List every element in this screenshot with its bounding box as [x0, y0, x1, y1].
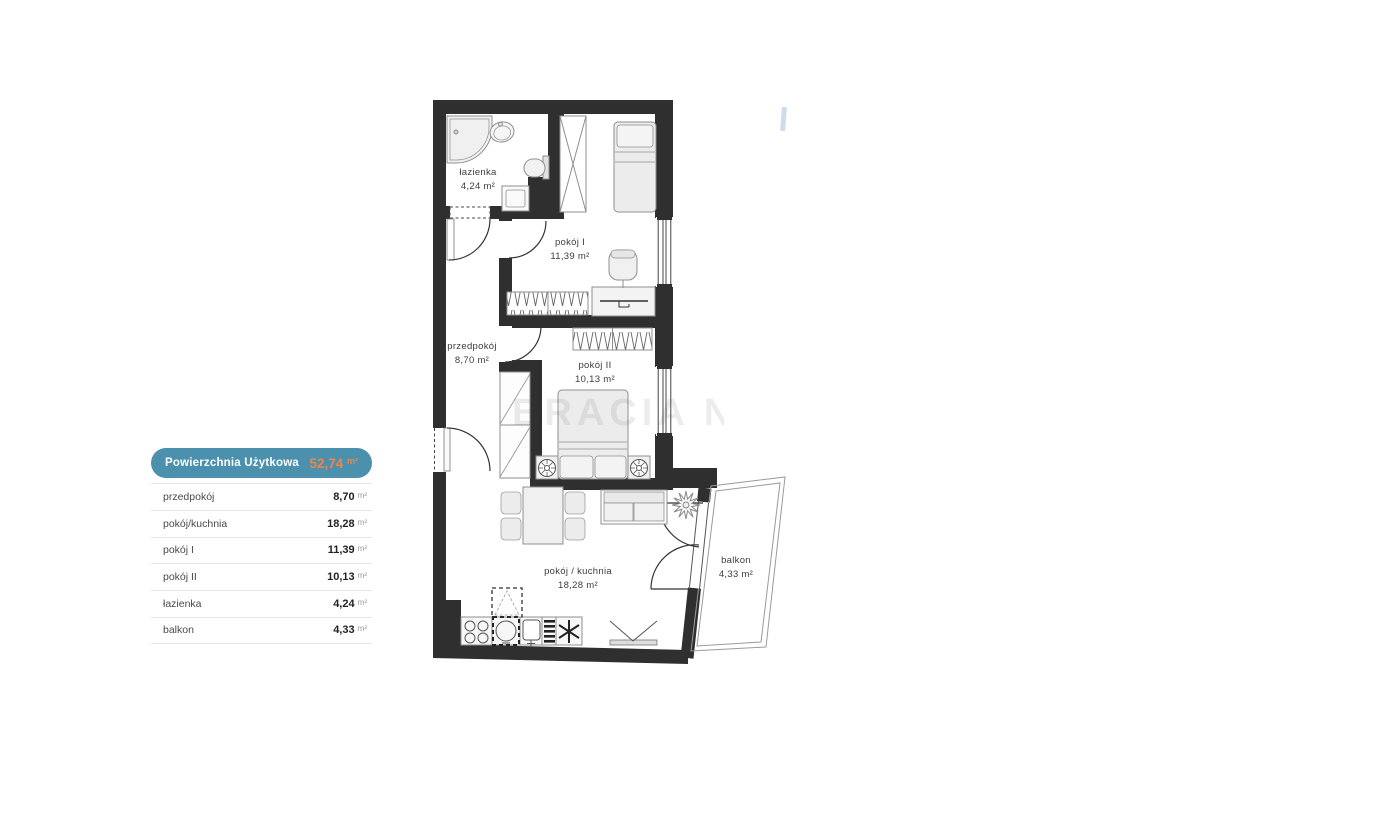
kitchen-counter — [461, 588, 582, 647]
desk — [592, 287, 655, 316]
room-label-balkon: balkon 4,33 m² — [719, 554, 753, 582]
room-label-przedpokoj: przedpokój 8,70 m² — [447, 340, 496, 368]
nightstand-right — [628, 456, 650, 479]
watermark: BRACIA N — [512, 390, 724, 436]
dining-table — [523, 487, 563, 544]
room-area: 10,13 m² — [575, 373, 615, 387]
room-label-pokoj-2: pokój II 10,13 m² — [575, 359, 615, 387]
room-area: 8,70 m² — [447, 354, 496, 368]
room-area: 4,24 m² — [459, 180, 496, 194]
room-area: 4,33 m² — [719, 568, 753, 582]
room-name: łazienka — [459, 166, 496, 180]
bathroom-door — [447, 207, 490, 260]
room-name: przedpokój — [447, 340, 496, 354]
room-name: balkon — [719, 554, 753, 568]
room-label-pokoj-1: pokój I 11,39 m² — [550, 236, 589, 264]
toilet — [524, 156, 549, 179]
room-label-lazienka: łazienka 4,24 m² — [459, 166, 496, 194]
wardrobe-x — [560, 116, 586, 212]
office-chair — [609, 250, 637, 288]
room-area: 11,39 m² — [550, 250, 589, 264]
floor-plan: BRACIA N łazienka 4,24 m² pokój I 11,39 … — [0, 0, 1379, 824]
window-pokoj-1 — [656, 217, 673, 287]
nightstand-left — [536, 456, 558, 479]
entrance-door — [433, 428, 490, 472]
room-name: pokój I — [550, 236, 589, 250]
room-name: pokój II — [575, 359, 615, 373]
extractor-hood — [492, 588, 522, 617]
room-name: pokój / kuchnia — [544, 565, 612, 579]
bed-single — [614, 122, 656, 212]
screenshot-stage: Powierzchnia Użytkowa 52,74 m² przedpokó… — [0, 0, 1379, 824]
pokoj-1-door — [499, 221, 546, 258]
room-area: 18,28 m² — [544, 579, 612, 593]
wardrobe-hatched-pokoj-2 — [573, 328, 652, 350]
kitchen-radiator — [610, 621, 657, 645]
sofa — [601, 490, 667, 524]
pokoj-2-door — [499, 326, 541, 362]
washing-machine — [502, 186, 529, 211]
bathroom-shower — [447, 116, 492, 163]
wardrobe-hatched-pokoj-1 — [507, 292, 588, 315]
room-label-pokoj-kuchnia: pokój / kuchnia 18,28 m² — [544, 565, 612, 593]
